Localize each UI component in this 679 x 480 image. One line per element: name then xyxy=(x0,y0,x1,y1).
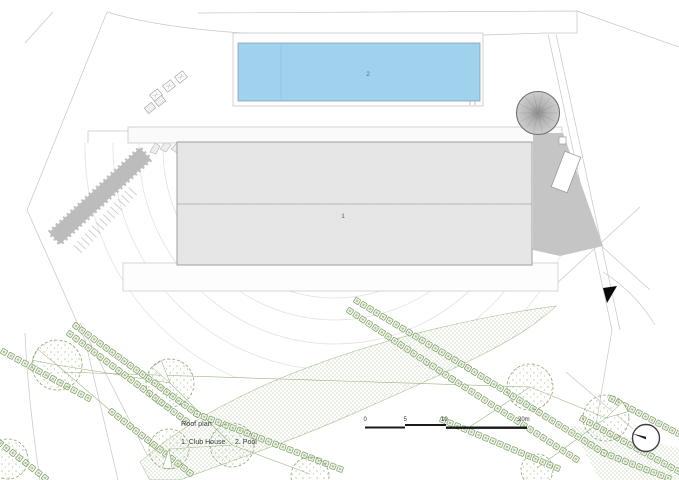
hedge-row xyxy=(366,305,374,313)
hedge-row xyxy=(121,371,129,379)
lower-terrace xyxy=(123,263,558,291)
hedge-row xyxy=(35,469,43,477)
hedge-row xyxy=(475,431,482,438)
hedge-row xyxy=(655,420,663,428)
driveway xyxy=(533,133,603,256)
clubhouse-roof xyxy=(177,142,532,265)
ramp-cars xyxy=(144,71,187,114)
hedge-row xyxy=(553,464,560,471)
hedge-row xyxy=(126,422,134,430)
hedge-row xyxy=(360,301,368,309)
hedge-row xyxy=(392,321,400,329)
hedge-row xyxy=(548,417,556,425)
hedge-row xyxy=(114,353,122,361)
roof-plan-canvas: 2 1 0 5 10 20m Roof plan 1. Club House 2… xyxy=(0,0,679,480)
hedge-row xyxy=(21,360,29,368)
tree-circle xyxy=(291,457,329,480)
hedge-row xyxy=(286,446,293,453)
hedge-row xyxy=(353,297,361,305)
hedge-row xyxy=(526,426,534,434)
site-plan-drawing: 2 1 0 5 10 20m Roof plan 1. Club House 2… xyxy=(0,0,679,480)
hedge-row xyxy=(559,447,567,455)
hedge-row xyxy=(500,409,508,417)
hedge-row xyxy=(497,384,505,392)
hedge-row xyxy=(120,357,128,365)
planting-band-corner xyxy=(570,425,679,480)
hedge-row xyxy=(133,380,141,388)
hedge-row xyxy=(642,413,650,421)
hedge-row xyxy=(84,331,92,339)
tree-circle xyxy=(507,364,553,410)
hedge-row xyxy=(455,379,463,387)
hedge-row xyxy=(461,425,468,432)
hedge-row xyxy=(14,356,22,364)
north-arrow xyxy=(632,425,660,452)
hedge-row xyxy=(90,335,98,343)
hedge-row xyxy=(482,434,489,441)
hedge-row xyxy=(662,423,670,431)
scale-bar: 0 5 10 20m xyxy=(364,417,530,429)
hedge-row xyxy=(279,443,286,450)
hedge-row xyxy=(477,372,485,380)
hedge-row xyxy=(474,392,482,400)
hedge-row xyxy=(372,324,380,332)
upper-terrace xyxy=(128,127,562,143)
scale-0: 0 xyxy=(364,417,368,423)
hedge-row xyxy=(365,320,373,328)
hedge-row xyxy=(464,364,472,372)
hedge-row xyxy=(133,366,141,374)
hedge-row xyxy=(489,437,496,444)
hedge-row xyxy=(41,474,49,480)
hedge-row xyxy=(533,430,541,438)
black-triangle-marker xyxy=(603,286,617,303)
hedge-row xyxy=(336,465,343,472)
hedge-row xyxy=(108,348,116,356)
hedge-row xyxy=(561,425,569,433)
hedge-row xyxy=(72,335,80,343)
hedge-row xyxy=(468,388,476,396)
hedge-row xyxy=(84,394,92,402)
hedge-row xyxy=(28,464,36,472)
hedge-row xyxy=(507,413,515,421)
hedge-row xyxy=(359,316,367,324)
hedge-row xyxy=(346,307,354,315)
hedge-row xyxy=(468,428,475,435)
hedge-row xyxy=(70,386,78,394)
hedge-row xyxy=(109,362,117,370)
hedge-row xyxy=(102,344,110,352)
legend-item-pool: 2. Pool xyxy=(235,439,257,446)
scrub-strip xyxy=(49,148,151,244)
hedge-row xyxy=(669,427,677,435)
hedge-row xyxy=(535,409,543,417)
hedge-row xyxy=(96,340,104,348)
hedge-row xyxy=(566,451,574,459)
hedge-row xyxy=(555,421,563,429)
scale-20m: 20m xyxy=(518,417,530,423)
hedge-row xyxy=(553,443,561,451)
hedge-row xyxy=(648,416,656,424)
hedge-row xyxy=(72,322,80,330)
hedge-row xyxy=(490,380,498,388)
tree-circle xyxy=(0,439,28,479)
hedge-row xyxy=(572,455,580,463)
hedge-row xyxy=(77,390,85,398)
hedge-row xyxy=(0,348,8,356)
hedge-row xyxy=(170,408,178,416)
hedge-row xyxy=(503,443,510,450)
hedge-row xyxy=(540,434,548,442)
scale-10: 10 xyxy=(441,417,448,423)
hedge-row xyxy=(471,368,479,376)
hedge-row xyxy=(484,376,492,384)
hedge-row xyxy=(293,449,300,456)
hedge-row xyxy=(494,405,502,413)
hedge-row xyxy=(518,449,525,456)
hedge-row xyxy=(139,370,147,378)
hedge-row xyxy=(66,330,74,338)
hedge-row xyxy=(481,396,489,404)
hedge-row xyxy=(138,432,146,440)
hedge-row xyxy=(193,410,200,417)
hedge-row xyxy=(542,413,550,421)
hedge-row xyxy=(126,362,134,370)
skylight-box xyxy=(559,137,566,144)
hedge-row xyxy=(487,400,495,408)
hedge-row xyxy=(90,348,98,356)
hedge-row xyxy=(97,353,105,361)
hedge-row xyxy=(546,438,554,446)
hedge-row xyxy=(108,408,116,416)
hedge-row xyxy=(384,333,392,341)
legend-title: Roof plan xyxy=(181,419,212,428)
hedge-row xyxy=(329,463,336,470)
hedge-row xyxy=(120,417,128,425)
hedge-row xyxy=(114,413,122,421)
pool xyxy=(238,43,480,101)
hedge-row xyxy=(675,430,679,438)
hedge-row xyxy=(496,440,503,447)
clubhouse-label: 1 xyxy=(341,213,345,220)
hedge-row xyxy=(635,409,643,417)
hedge-row xyxy=(103,358,111,366)
pool-label: 2 xyxy=(366,71,370,78)
scale-5: 5 xyxy=(404,417,408,423)
hedge-row xyxy=(115,367,123,375)
legend-item-club-house: 1. Club House xyxy=(181,439,225,446)
hedge-row xyxy=(448,375,456,383)
planting-band xyxy=(140,306,556,480)
hedge-row xyxy=(386,317,394,325)
hedge-row xyxy=(628,406,636,414)
hedge-row xyxy=(378,328,386,336)
hedge-row xyxy=(511,446,518,453)
hedge-row xyxy=(7,352,15,360)
